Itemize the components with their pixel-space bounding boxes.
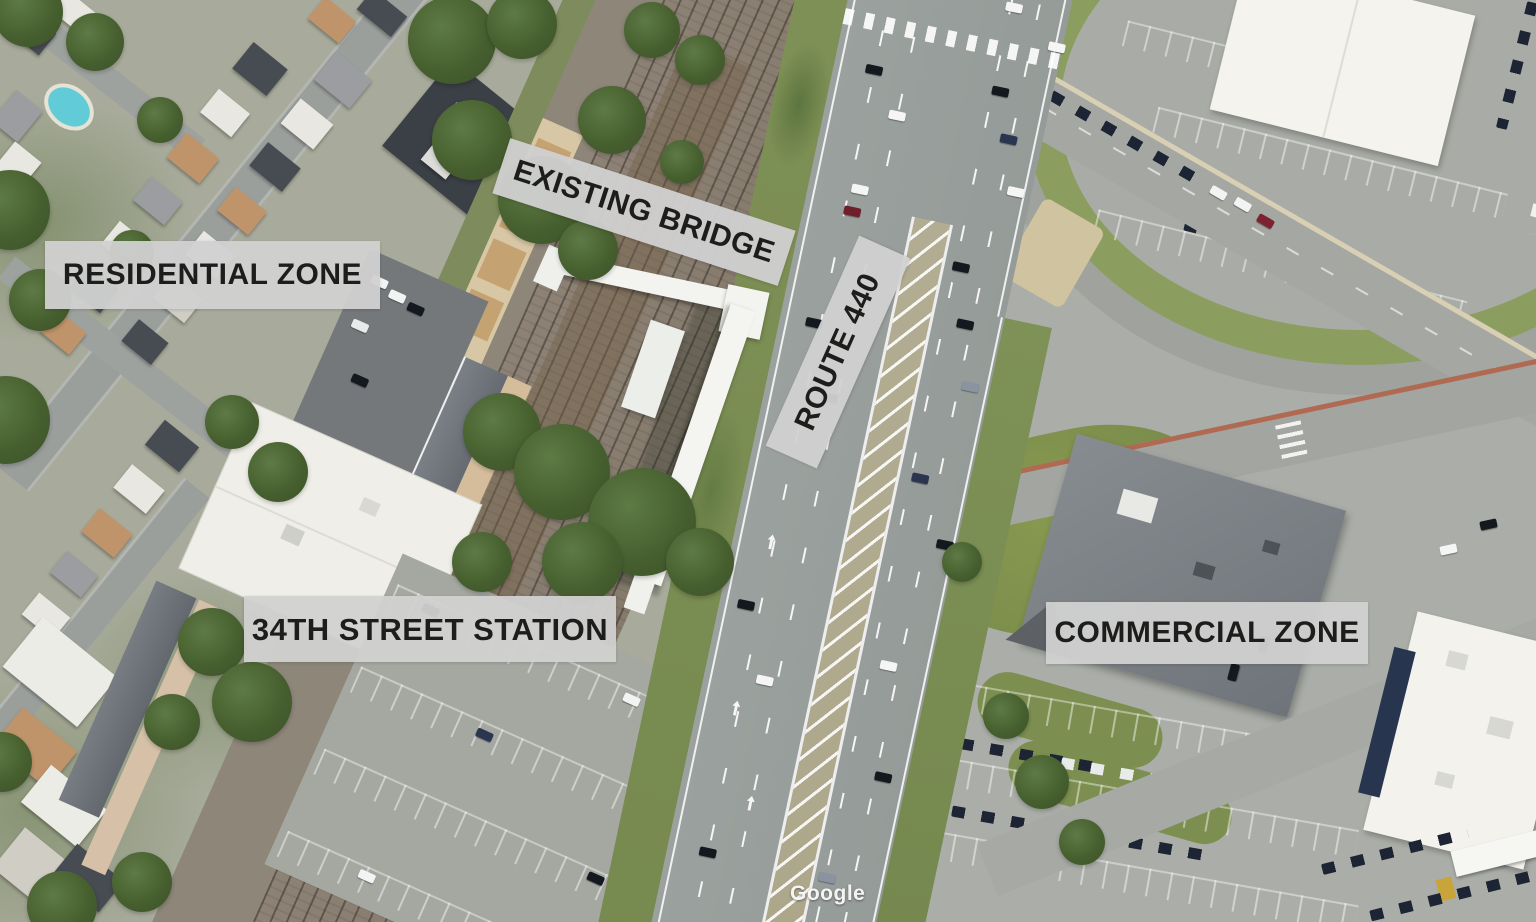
label-commercial-zone: COMMERCIAL ZONE: [1046, 602, 1368, 664]
google-watermark: Google: [790, 882, 865, 906]
label-34th-street-station: 34TH STREET STATION: [244, 596, 616, 662]
satellite-map: RESIDENTIAL ZONE EXISTING BRIDGE ROUTE 4…: [0, 0, 1536, 922]
label-residential-zone: RESIDENTIAL ZONE: [45, 241, 380, 309]
